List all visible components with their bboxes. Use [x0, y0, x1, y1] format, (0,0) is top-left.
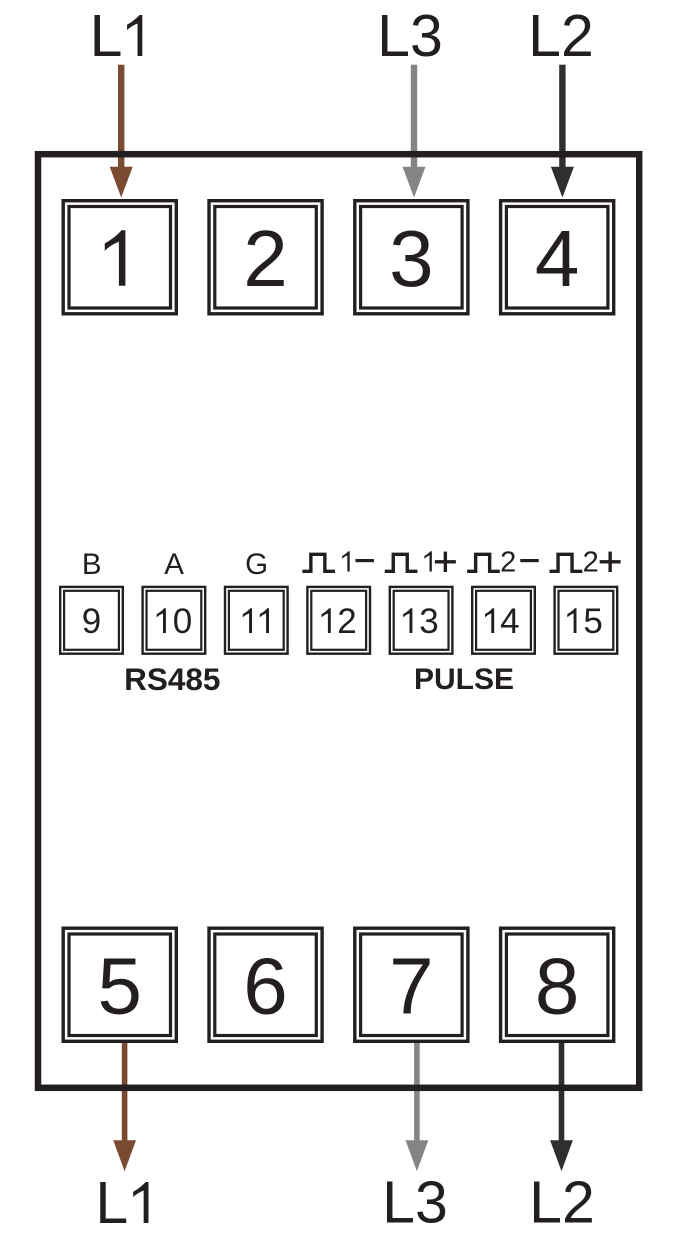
svg-text:PULSE: PULSE	[414, 663, 514, 696]
svg-text:0: 0	[173, 602, 192, 641]
svg-text:G: G	[245, 548, 268, 581]
svg-text:L3: L3	[377, 3, 443, 69]
svg-text:L2: L2	[529, 1170, 595, 1236]
svg-text:3: 3	[419, 602, 438, 641]
svg-text:L2: L2	[528, 3, 594, 69]
svg-text:RS485: RS485	[124, 661, 220, 697]
svg-text:5: 5	[583, 602, 602, 641]
svg-text:9: 9	[82, 602, 101, 641]
svg-text:A: A	[164, 548, 184, 581]
svg-text:6: 6	[243, 942, 288, 1031]
svg-text:2: 2	[500, 547, 516, 579]
svg-text:3: 3	[389, 214, 434, 303]
svg-text:L: L	[90, 3, 123, 69]
svg-text:7: 7	[389, 942, 434, 1031]
svg-text:2: 2	[583, 547, 599, 579]
svg-text:4: 4	[535, 214, 580, 303]
svg-text:L: L	[95, 1170, 128, 1236]
svg-text:8: 8	[535, 942, 580, 1031]
svg-text:5: 5	[98, 942, 143, 1031]
svg-text:2: 2	[243, 214, 288, 303]
svg-text:B: B	[82, 548, 102, 581]
svg-text:4: 4	[500, 602, 519, 641]
svg-text:2: 2	[337, 602, 356, 641]
svg-text:L3: L3	[382, 1170, 448, 1236]
